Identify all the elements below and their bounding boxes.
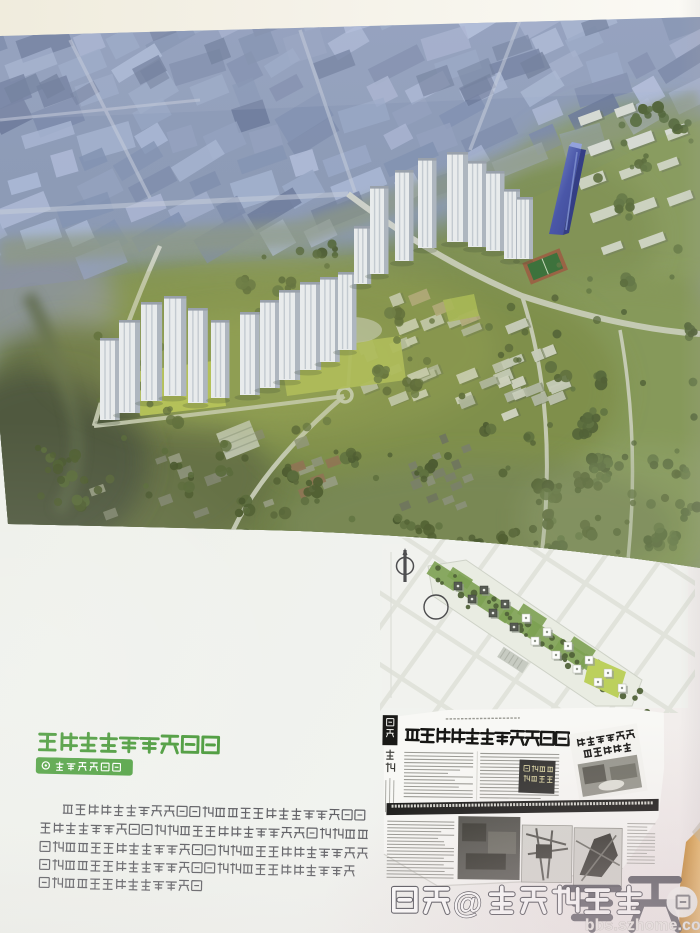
svg-text:@: @ — [453, 887, 482, 920]
svg-text:bbs.szhome.com: bbs.szhome.com — [585, 917, 700, 933]
